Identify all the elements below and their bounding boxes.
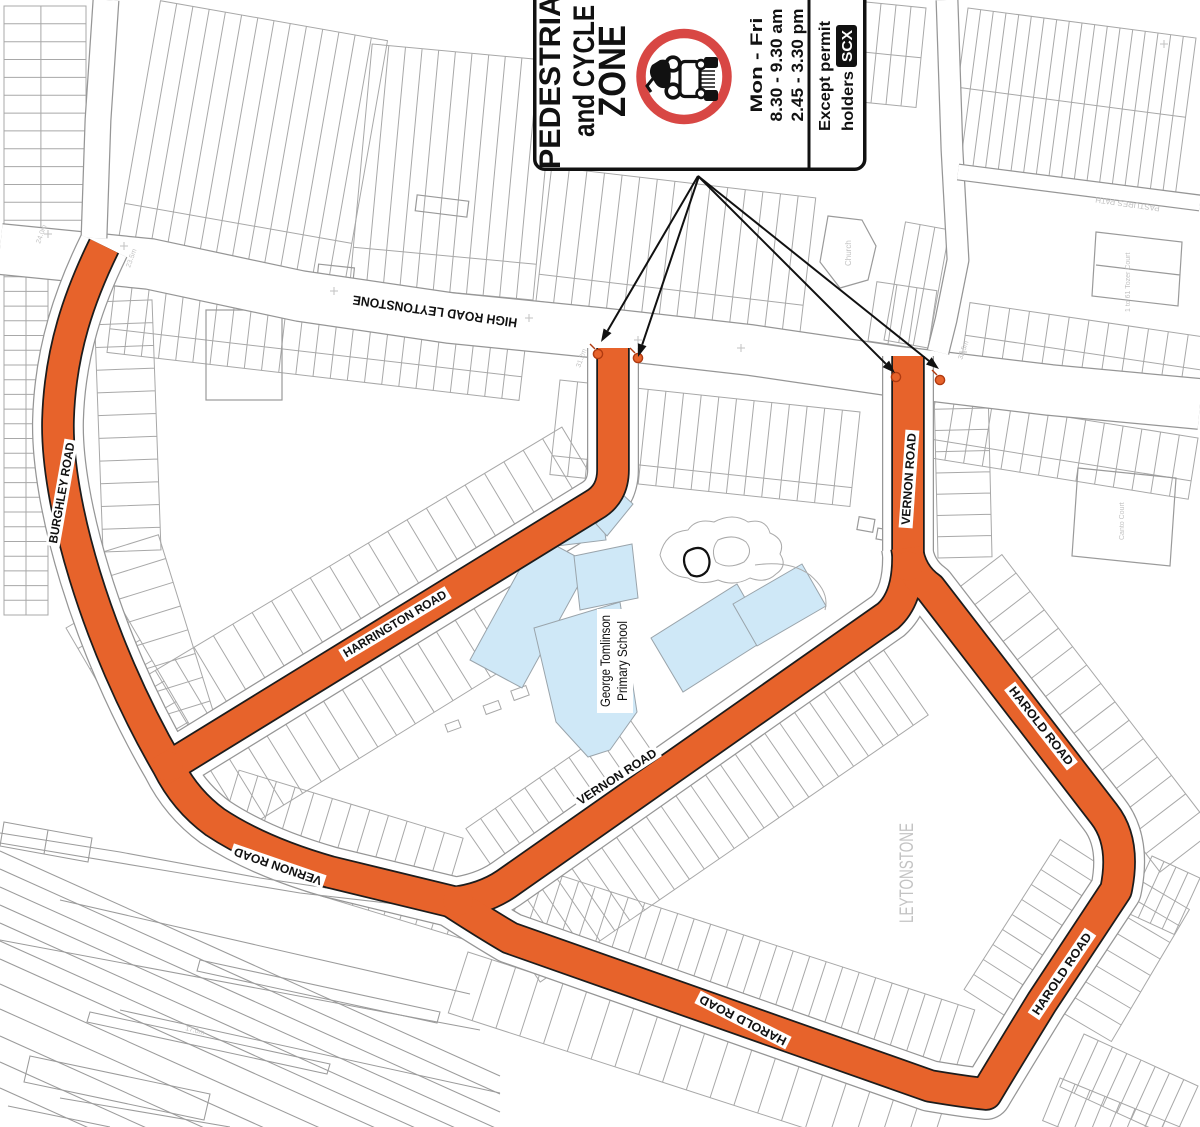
svg-text:Canto Court: Canto Court — [1119, 502, 1126, 540]
svg-text:LEYTONSTONE: LEYTONSTONE — [897, 823, 918, 923]
svg-text:Primary School: Primary School — [614, 621, 630, 701]
svg-text:SCX: SCX — [839, 30, 856, 62]
svg-text:Church: Church — [844, 240, 853, 266]
svg-text:holders: holders — [840, 71, 857, 131]
svg-text:1 to 61 Tozer Court: 1 to 61 Tozer Court — [1125, 253, 1132, 312]
svg-text:PEDESTRIAN: PEDESTRIAN — [534, 0, 567, 169]
svg-text:ZONE: ZONE — [592, 25, 634, 117]
svg-text:Except permit: Except permit — [817, 20, 834, 131]
svg-text:George Tomlinson: George Tomlinson — [597, 615, 613, 707]
svg-text:2.45 - 3.30 pm: 2.45 - 3.30 pm — [788, 9, 807, 122]
svg-text:Mon - Fri: Mon - Fri — [747, 18, 766, 113]
svg-text:8.30 - 9.30 am: 8.30 - 9.30 am — [767, 9, 786, 122]
